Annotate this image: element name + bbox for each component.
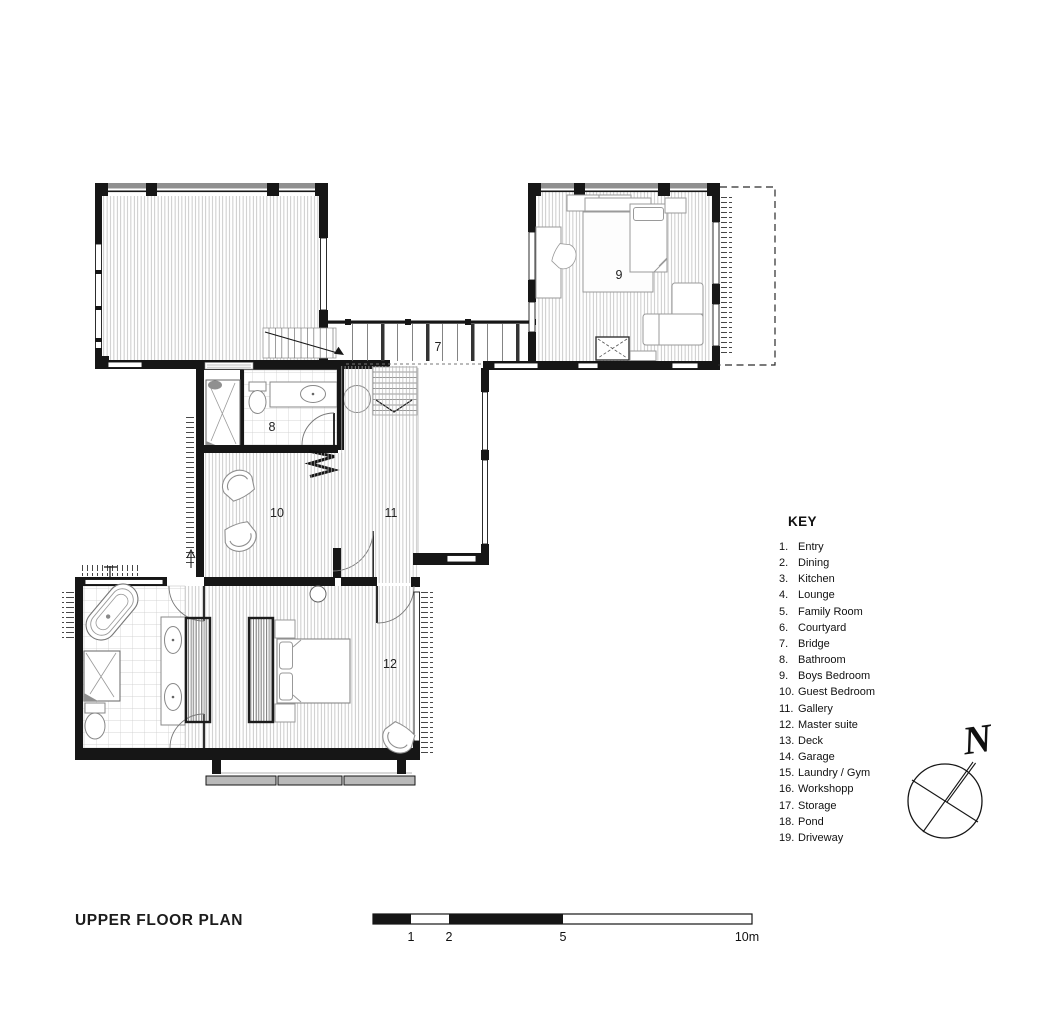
key-item-pond: 18.Pond	[779, 814, 875, 830]
compass: N	[908, 715, 997, 838]
wardrobe	[186, 618, 210, 722]
room-bathroom	[196, 361, 344, 453]
room-gallery	[341, 366, 418, 583]
key-item-garage: 14.Garage	[779, 749, 875, 765]
key-item-kitchen: 3.Kitchen	[779, 571, 875, 587]
nightstand	[275, 620, 295, 638]
north-needle	[947, 763, 976, 803]
window	[578, 363, 598, 369]
key-heading: KEY	[788, 514, 875, 529]
wardrobe	[249, 618, 273, 722]
towel	[208, 381, 222, 390]
key-item-bathroom: 8.Bathroom	[779, 652, 875, 668]
window	[447, 556, 476, 563]
window	[494, 363, 538, 369]
key-panel: KEY 1.Entry 2.Dining 3.Kitchen 4.Lounge …	[779, 514, 875, 846]
key-item-gallery: 11.Gallery	[779, 701, 875, 717]
north-label: N	[959, 715, 997, 764]
room-label-guest-bedroom: 10	[270, 506, 284, 520]
window	[672, 363, 698, 369]
window	[713, 304, 719, 346]
scale-tick-2: 2	[446, 930, 453, 944]
key-item-workshop: 16.Workshopp	[779, 781, 875, 797]
stairs-upper	[263, 328, 344, 358]
niche	[205, 363, 253, 370]
louvres	[421, 589, 433, 755]
key-item-guest-bedroom: 10.Guest Bedroom	[779, 684, 875, 700]
ceiling-light	[310, 586, 326, 602]
window	[321, 238, 327, 310]
room-label-bridge: 7	[435, 340, 442, 354]
room-top-left	[95, 183, 390, 369]
louvres	[62, 589, 74, 641]
room-label-boys-bedroom: 9	[616, 268, 623, 282]
nightstand	[275, 704, 295, 722]
side-table	[665, 198, 686, 213]
room-master-suite	[62, 565, 433, 785]
room-label-gallery: 11	[385, 506, 398, 520]
pillow	[634, 208, 664, 221]
window	[529, 302, 535, 332]
plan-title: UPPER FLOOR PLAN	[75, 912, 243, 930]
key-item-lounge: 4.Lounge	[779, 587, 875, 603]
key-item-driveway: 19.Driveway	[779, 830, 875, 846]
void-area	[413, 368, 489, 565]
toilet	[249, 391, 266, 414]
key-item-storage: 17.Storage	[779, 798, 875, 814]
key-item-deck: 13.Deck	[779, 733, 875, 749]
toilet	[85, 713, 105, 739]
floor-plan-sheet: 7 8 9 10 11 12 N 1 2 5 10m KEY 1.Entry 2…	[0, 0, 1051, 1023]
window	[713, 222, 719, 284]
scale-tick-1: 1	[408, 930, 415, 944]
key-item-master-suite: 12.Master suite	[779, 717, 875, 733]
room-label-bathroom: 8	[269, 420, 276, 434]
key-item-laundry-gym: 15.Laundry / Gym	[779, 765, 875, 781]
window	[483, 392, 488, 450]
master-bed	[277, 639, 350, 703]
shower	[206, 380, 240, 447]
key-item-entry: 1.Entry	[779, 539, 875, 555]
window	[108, 362, 142, 368]
window	[414, 592, 420, 741]
window	[96, 244, 102, 352]
key-item-bridge: 7.Bridge	[779, 636, 875, 652]
scale-tick-5: 5	[560, 930, 567, 944]
window	[483, 460, 488, 544]
key-item-boys-bedroom: 9.Boys Bedroom	[779, 668, 875, 684]
toilet-tank	[249, 382, 266, 391]
key-item-family-room: 5.Family Room	[779, 604, 875, 620]
louvres	[186, 415, 196, 565]
room-label-master-suite: 12	[383, 657, 397, 671]
deck-balustrade	[206, 760, 415, 785]
key-item-dining: 2.Dining	[779, 555, 875, 571]
ensuite-shower	[84, 651, 120, 701]
key-item-courtyard: 6.Courtyard	[779, 620, 875, 636]
toilet-tank	[85, 703, 105, 713]
sofa	[643, 314, 703, 345]
louvres	[721, 194, 732, 356]
room-boys-bedroom	[483, 183, 775, 370]
floor-plan-drawing: 7 8 9 10 11 12 N 1 2 5 10m	[0, 0, 1051, 1023]
scale-tick-10m: 10m	[735, 930, 759, 944]
window	[529, 232, 535, 280]
scale-bar: 1 2 5 10m	[373, 914, 759, 944]
